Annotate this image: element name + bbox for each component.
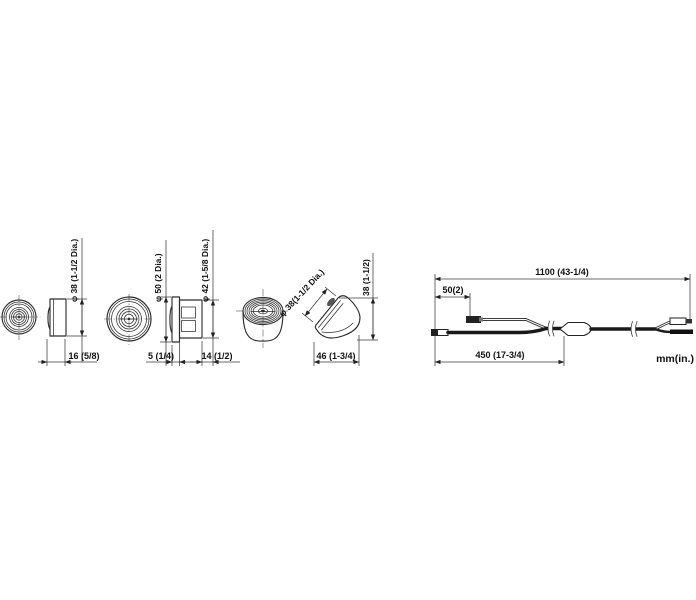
dim-label-flange-outer-diameter: φ 50 (2 Dia.) — [153, 253, 163, 302]
dim-label-flange-thickness: 5 (1/4) — [148, 351, 174, 361]
lead-connector-tip — [431, 329, 438, 336]
dim-angled-lens-diameter: φ 38(1-1/2 Dia.) — [277, 267, 336, 322]
dimension-drawing-svg: φ 38 (1-1/2 Dia.) 16 (5/8) φ 50 (2 Dia. — [0, 0, 696, 600]
output-connector-cap — [686, 319, 692, 324]
ferrite-bead — [560, 323, 591, 336]
dim-flush-depth: 16 (5/8) — [38, 339, 100, 366]
dim-label-flange-body-diameter: φ 42 (1-5/8 Dia.) — [200, 239, 210, 302]
camera-flange-side-view — [170, 297, 202, 342]
clip — [182, 307, 196, 318]
dim-label-cable-lead: 450 (17-3/4) — [475, 350, 524, 360]
dim-label-angled-width: 46 (1-3/4) — [316, 351, 355, 361]
dim-label-angled-height: 38 (1-1/2) — [361, 259, 371, 296]
body — [180, 300, 203, 338]
camera-flush-side-view — [48, 299, 66, 336]
dim-flange-outer-diameter: φ 50 (2 Dia.) — [153, 240, 171, 366]
dim-label-cable-branch: 50(2) — [442, 285, 463, 295]
clip — [182, 321, 196, 332]
camera-flush-front-view — [0, 295, 41, 340]
power-wire-end — [670, 330, 693, 335]
camera-angled-front-view — [236, 289, 290, 348]
camera-lead-cable — [448, 329, 546, 333]
output-connector — [670, 318, 686, 325]
dim-angled-height: 38 (1-1/2) — [339, 253, 378, 340]
units-label: mm(in.) — [656, 353, 694, 365]
branch-connector — [466, 316, 481, 323]
dim-flange-body-depth: 14 (1/2) — [190, 341, 240, 366]
dim-flange-thickness: 5 (1/4) — [146, 341, 196, 366]
dimension-drawing-page: φ 38 (1-1/2 Dia.) 16 (5/8) φ 50 (2 Dia. — [0, 0, 696, 600]
dim-angled-width: 46 (1-3/4) — [314, 335, 359, 366]
dim-label-flush-depth: 16 (5/8) — [68, 351, 99, 361]
camera-angled-side-view — [315, 296, 360, 338]
flange — [172, 297, 180, 342]
dim-flush-diameter: φ 38 (1-1/2 Dia.) — [67, 238, 87, 362]
dim-label-cable-total: 1100 (43-1/4) — [535, 267, 589, 277]
dim-label-flush-diameter: φ 38 (1-1/2 Dia.) — [69, 239, 79, 302]
dim-flange-body-diameter: φ 42 (1-5/8 Dia.) — [200, 230, 219, 366]
camera-flange-front-view — [104, 294, 154, 345]
cable-drawing — [431, 316, 693, 337]
dim-label-angled-lens-diameter: φ 38(1-1/2 Dia.) — [277, 267, 326, 318]
dim-label-flange-body-depth: 14 (1/2) — [201, 351, 232, 361]
